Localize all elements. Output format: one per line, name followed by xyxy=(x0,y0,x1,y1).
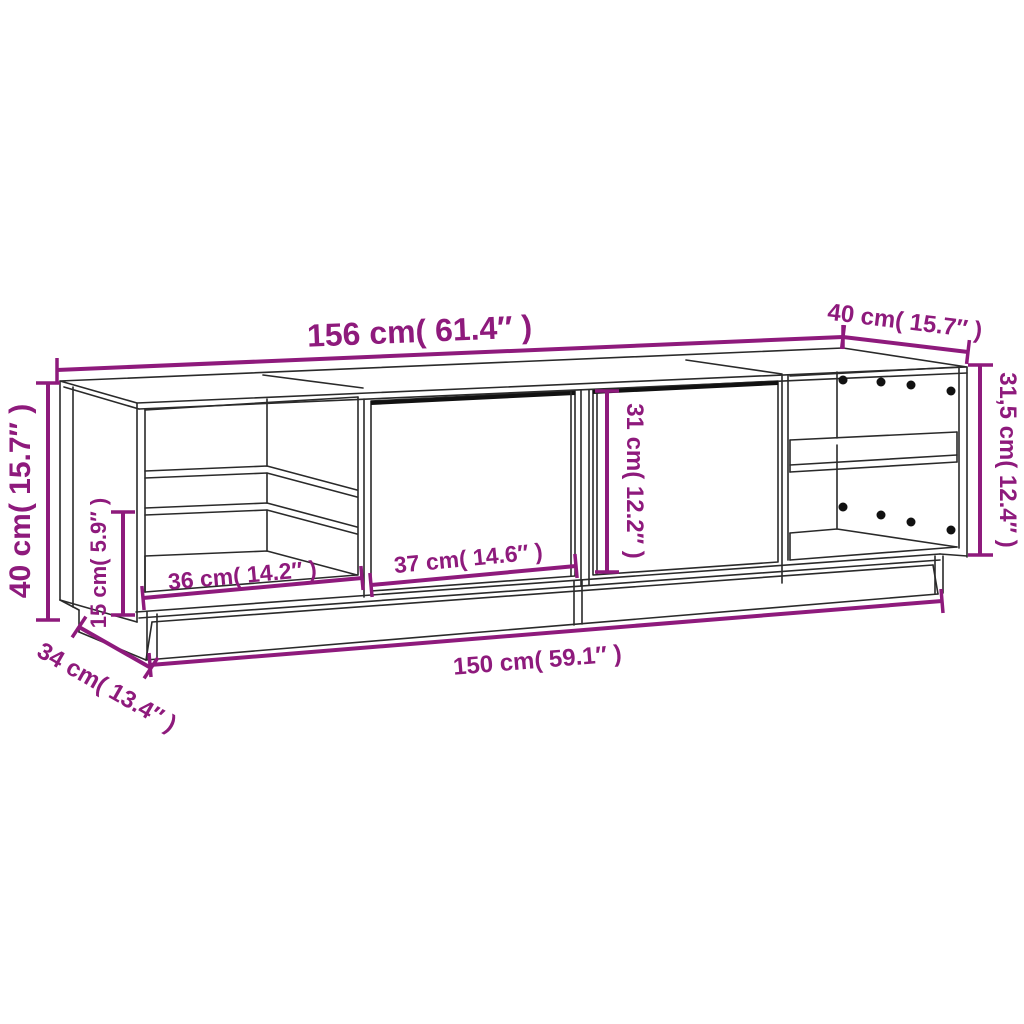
dim-base-width-label: 150 cm( 59.1″ ) xyxy=(452,640,623,680)
dim-top-depth: 40 cm( 15.7″ ) xyxy=(826,299,984,364)
dim-base-depth-label: 34 cm( 13.4″ ) xyxy=(32,637,181,738)
peg-hole xyxy=(947,526,956,535)
dim-shelf-spacing: 15 cm( 5.9″ ) xyxy=(86,498,135,628)
peg-hole xyxy=(839,503,848,512)
dim-shelf-spacing-label: 15 cm( 5.9″ ) xyxy=(86,498,111,628)
door-divider xyxy=(581,390,589,586)
dim-overall-height-label: 40 cm( 15.7″ ) xyxy=(4,404,37,598)
diagram-canvas: 156 cm( 61.4″ ) 40 cm( 15.7″ ) 31,5 cm( … xyxy=(0,0,1024,1024)
dim-side-height-right-label: 31,5 cm( 12.4″ ) xyxy=(994,372,1021,548)
dim-overall-width-label: 156 cm( 61.4″ ) xyxy=(306,308,533,353)
dim-overall-width: 156 cm( 61.4″ ) xyxy=(57,308,843,382)
dim-overall-height: 40 cm( 15.7″ ) xyxy=(4,383,60,620)
right-compartment xyxy=(790,367,967,560)
dim-left-compartment: 36 cm( 14.2″ ) xyxy=(142,555,363,610)
peg-hole xyxy=(877,378,886,387)
left-shelf-upper xyxy=(145,466,357,490)
furniture-dimension-diagram: 156 cm( 61.4″ ) 40 cm( 15.7″ ) 31,5 cm( … xyxy=(0,0,1024,1024)
dimension-annotations: 156 cm( 61.4″ ) 40 cm( 15.7″ ) 31,5 cm( … xyxy=(4,299,1021,738)
peg-hole xyxy=(907,518,916,527)
left-shelf-lower xyxy=(145,503,357,527)
peg-hole xyxy=(877,511,886,520)
peg-hole xyxy=(907,381,916,390)
peg-hole xyxy=(839,376,848,385)
dim-side-height-right: 31,5 cm( 12.4″ ) xyxy=(968,365,1021,555)
cabinet-drawing xyxy=(60,348,967,660)
dim-door-height: 31 cm( 12.2″ ) xyxy=(595,391,648,572)
peg-hole xyxy=(947,387,956,396)
right-shelf xyxy=(790,432,957,440)
door-right xyxy=(593,381,778,575)
dim-door-height-label: 31 cm( 12.2″ ) xyxy=(621,403,648,559)
dim-base-depth: 34 cm( 13.4″ ) xyxy=(32,617,181,738)
right-divider xyxy=(782,375,788,583)
cabinet-top-panel xyxy=(60,348,967,409)
